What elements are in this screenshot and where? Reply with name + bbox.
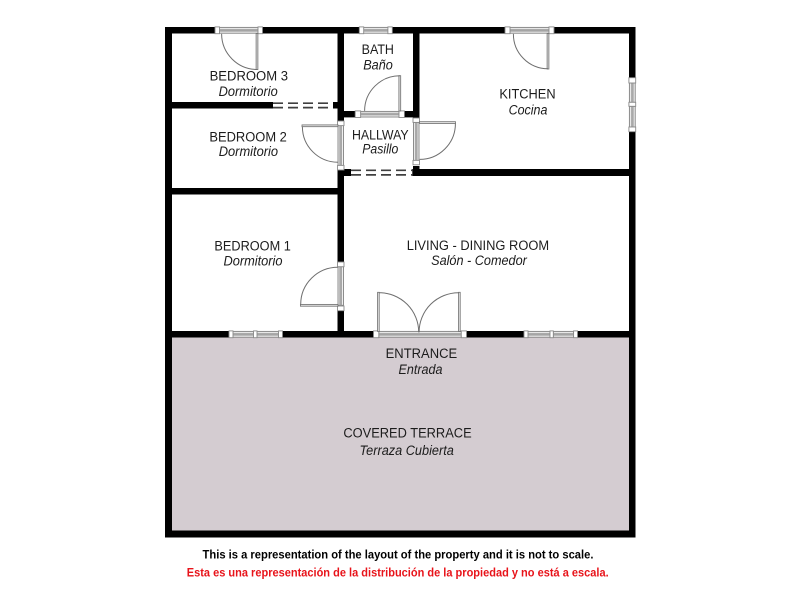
svg-text:Baño: Baño bbox=[363, 57, 393, 72]
svg-text:Dormitorio: Dormitorio bbox=[219, 84, 279, 99]
svg-text:ENTRANCE: ENTRANCE bbox=[386, 346, 458, 361]
svg-text:Pasillo: Pasillo bbox=[362, 142, 399, 157]
svg-text:LIVING - DINING ROOM: LIVING - DINING ROOM bbox=[407, 238, 549, 253]
svg-text:Cocina: Cocina bbox=[509, 103, 548, 118]
svg-text:BATH: BATH bbox=[362, 42, 394, 57]
svg-text:Esta es una representación de: Esta es una representación de la distrib… bbox=[187, 568, 609, 580]
svg-text:Salón - Comedor: Salón - Comedor bbox=[431, 253, 527, 268]
svg-text:BEDROOM 3: BEDROOM 3 bbox=[210, 69, 288, 84]
svg-text:This is a representation of th: This is a representation of the layout o… bbox=[203, 550, 594, 562]
svg-text:HALLWAY: HALLWAY bbox=[352, 128, 409, 143]
svg-text:Entrada: Entrada bbox=[399, 362, 443, 377]
svg-text:Dormitorio: Dormitorio bbox=[223, 254, 283, 269]
svg-text:BEDROOM 1: BEDROOM 1 bbox=[214, 239, 290, 254]
svg-text:Terraza Cubierta: Terraza Cubierta bbox=[360, 443, 455, 458]
svg-text:Dormitorio: Dormitorio bbox=[219, 144, 279, 159]
svg-text:BEDROOM 2: BEDROOM 2 bbox=[209, 129, 287, 144]
svg-text:KITCHEN: KITCHEN bbox=[499, 87, 555, 102]
svg-text:COVERED TERRACE: COVERED TERRACE bbox=[343, 425, 471, 440]
